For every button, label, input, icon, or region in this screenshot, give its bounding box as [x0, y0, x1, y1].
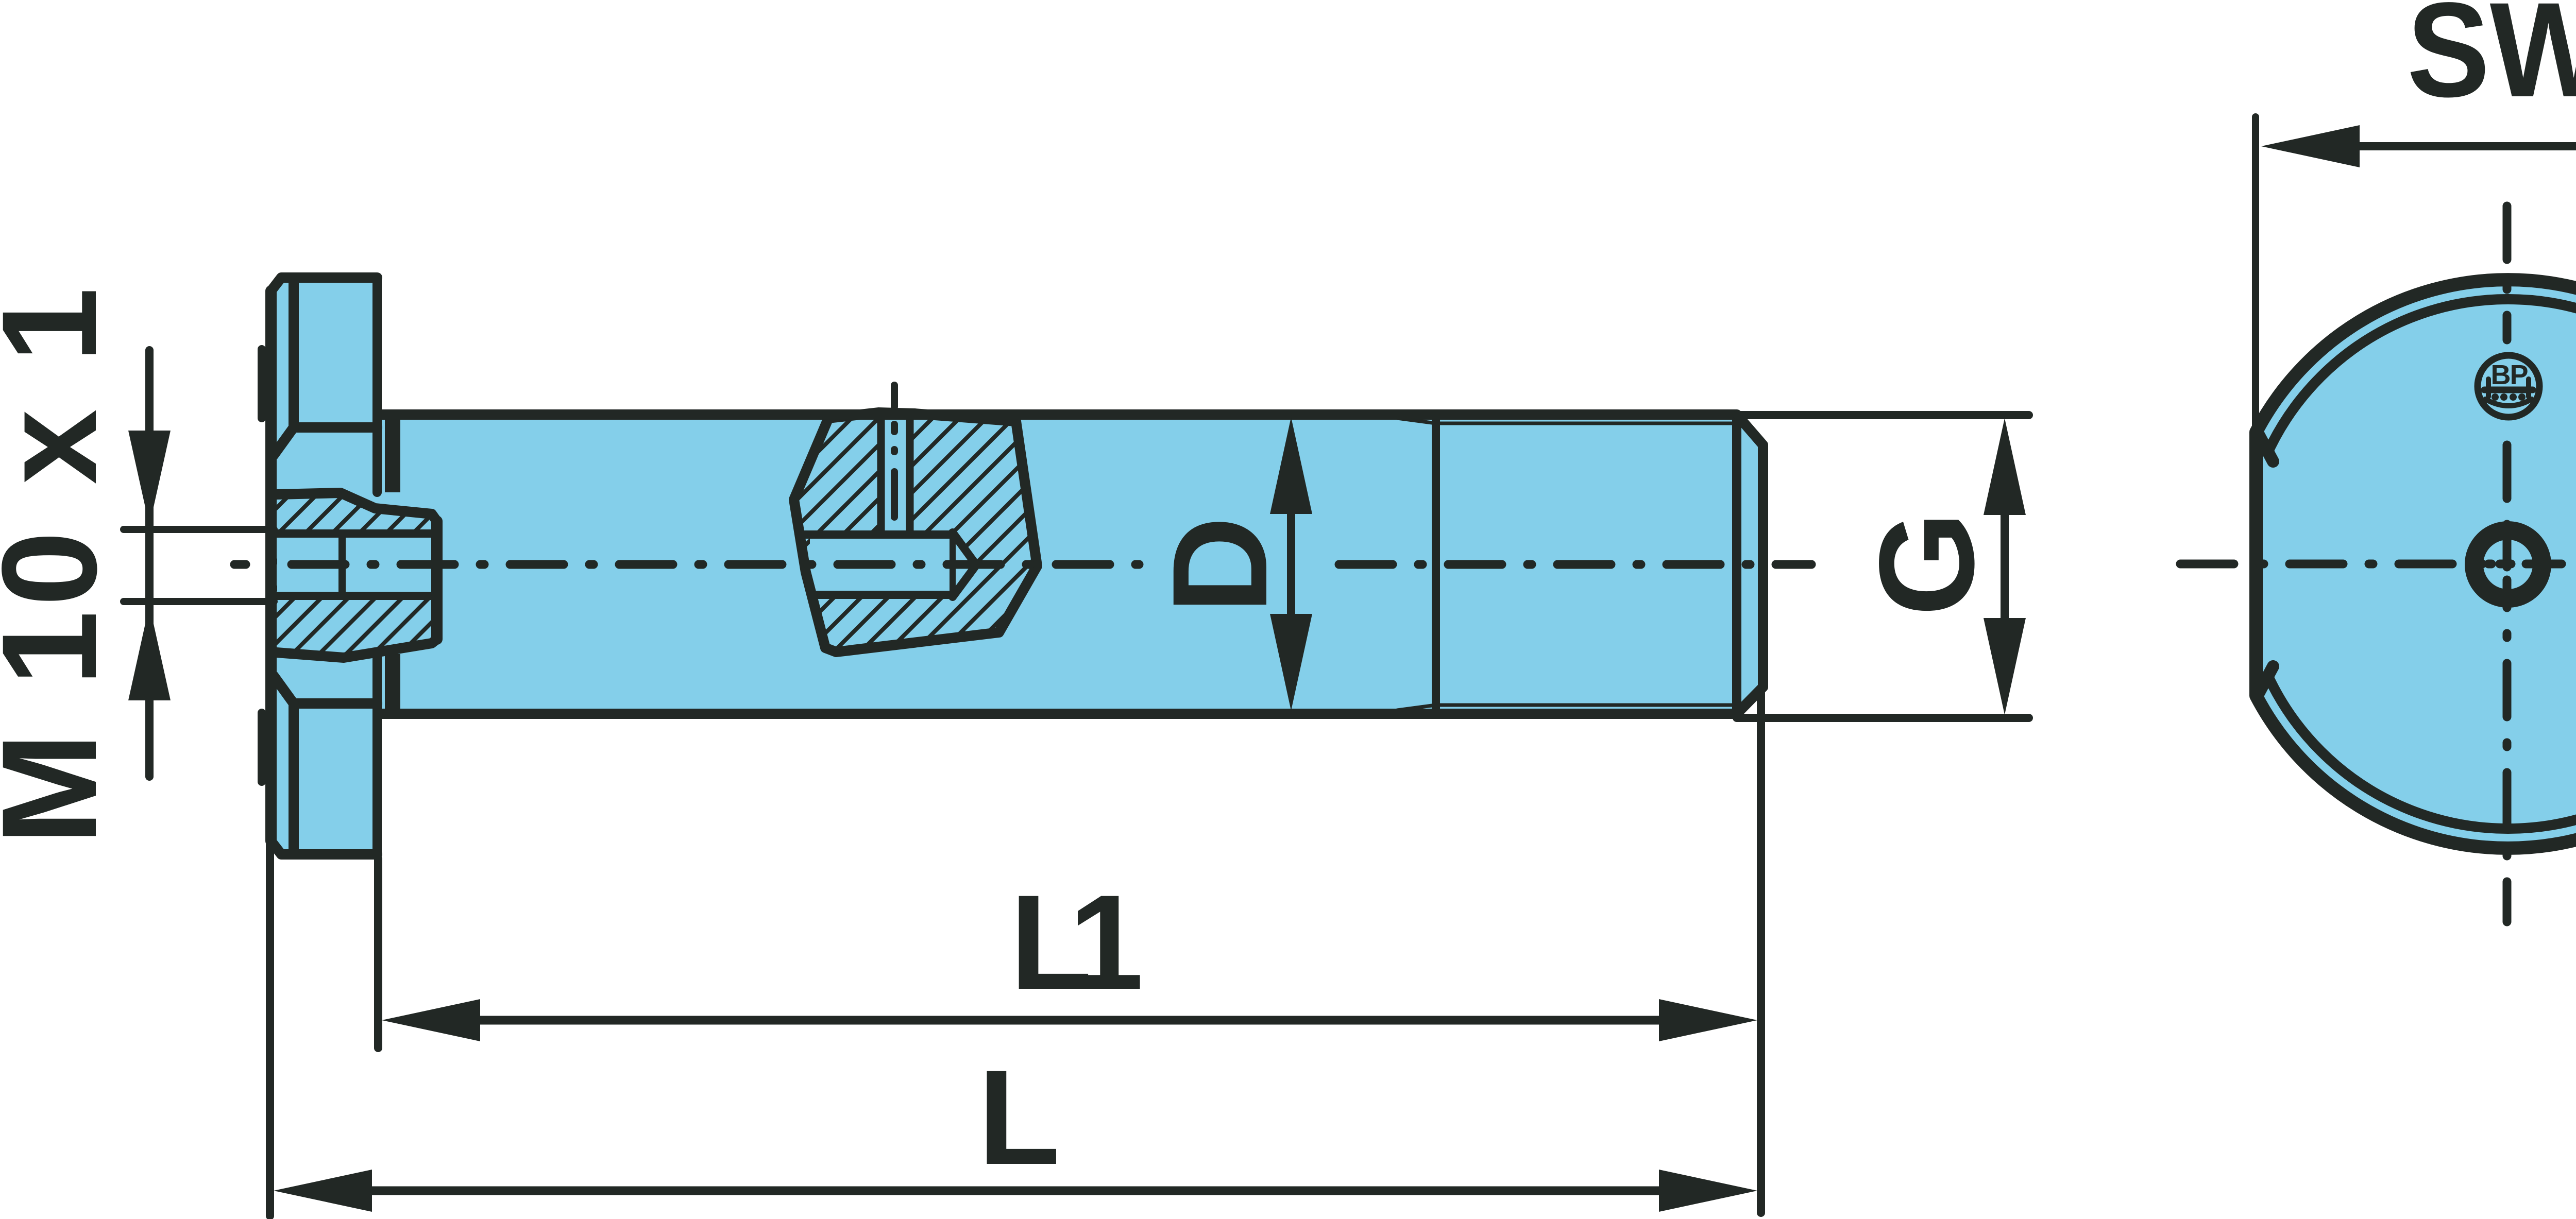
svg-text:SW: SW — [2407, 0, 2576, 125]
svg-text:D: D — [1144, 516, 1295, 613]
svg-text:L: L — [978, 1042, 1060, 1193]
svg-text:G: G — [1851, 511, 2002, 616]
svg-text:L1: L1 — [1010, 867, 1140, 1018]
svg-text:M 10 x 1: M 10 x 1 — [0, 283, 125, 845]
svg-text:BP: BP — [2490, 359, 2528, 390]
